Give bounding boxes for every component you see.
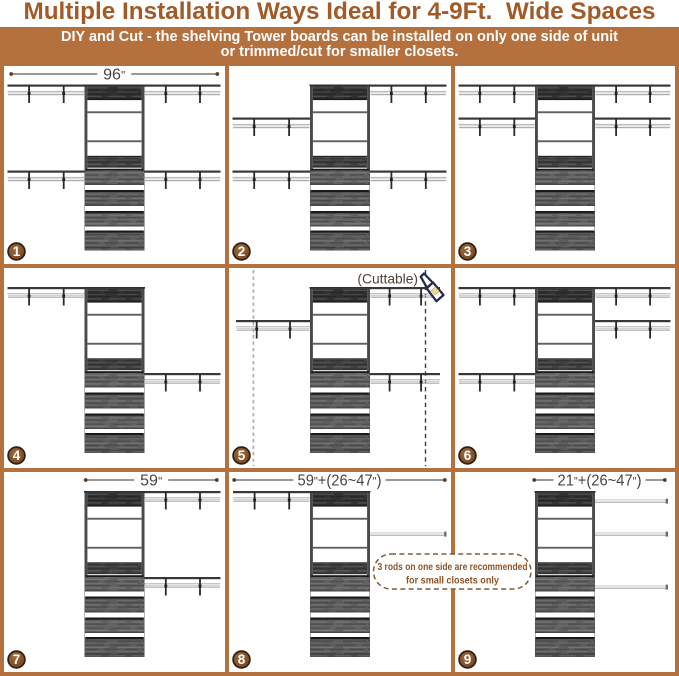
svg-text:6: 6 (464, 448, 472, 463)
svg-text:(Cuttable): (Cuttable) (357, 272, 418, 287)
svg-text:3: 3 (464, 244, 472, 259)
svg-text:59"+(26~47"): 59"+(26~47") (298, 473, 382, 490)
svg-text:9: 9 (464, 652, 472, 667)
svg-text:for small closets only: for small closets only (406, 575, 499, 587)
svg-text:2: 2 (238, 244, 246, 259)
svg-text:5: 5 (238, 448, 246, 463)
svg-text:96": 96" (103, 67, 125, 84)
svg-text:8: 8 (238, 652, 246, 667)
svg-text:3 rods on one side are recomme: 3 rods on one side are recommended (378, 561, 528, 573)
svg-text:1: 1 (13, 244, 21, 259)
svg-text:7: 7 (13, 652, 21, 667)
svg-text:4: 4 (13, 448, 21, 463)
svg-text:21"+(26~47"): 21"+(26~47") (558, 473, 642, 490)
svg-text:59": 59" (140, 473, 162, 490)
